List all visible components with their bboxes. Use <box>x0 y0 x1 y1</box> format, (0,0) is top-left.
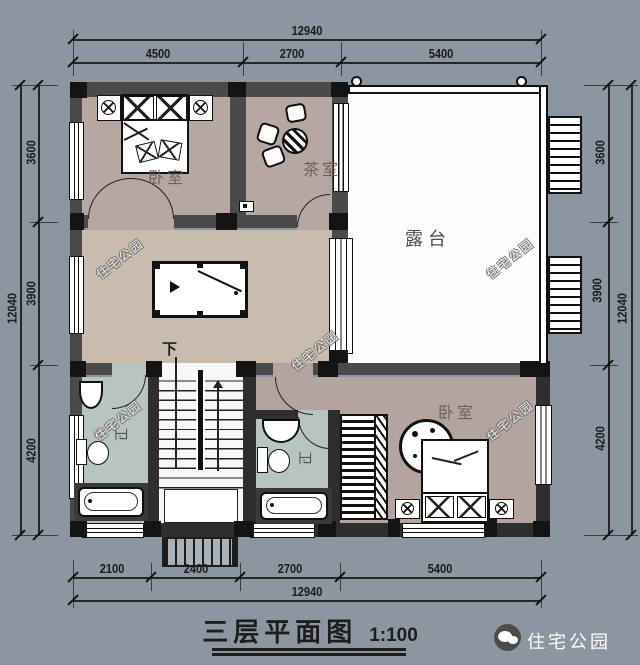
column <box>70 521 87 537</box>
column <box>388 519 400 537</box>
room-label-bedroom2: 卧室 <box>438 399 476 423</box>
window <box>69 256 84 334</box>
wechat-icon <box>494 624 521 651</box>
title-block: 三层平面图 1:100 <box>150 612 470 649</box>
column <box>228 82 246 97</box>
window <box>82 523 144 538</box>
lamp-icon <box>401 502 414 515</box>
dim-label: 2400 <box>171 561 222 576</box>
dim-line <box>20 85 22 535</box>
floor-plan-sheet: 下 <box>0 0 640 665</box>
toilet-bowl <box>87 441 109 465</box>
column <box>216 213 237 230</box>
room-label-bath2: 卫 <box>295 451 315 465</box>
column <box>146 361 162 377</box>
bed-pillow <box>457 496 486 518</box>
railing-post <box>351 76 362 87</box>
table-pocket <box>240 310 246 316</box>
rack-triangle <box>170 281 180 293</box>
title-underline <box>212 648 406 651</box>
room-label-tea: 茶室 <box>303 156 341 180</box>
window <box>402 523 485 538</box>
table-pocket <box>154 263 160 269</box>
wall-segment <box>86 363 112 375</box>
column <box>70 361 86 377</box>
tub-drain-dot <box>270 503 274 507</box>
billiard-ball-dot <box>234 291 238 295</box>
bed-line <box>121 119 189 121</box>
lamp-icon <box>193 100 208 115</box>
tub-inner-line <box>266 497 322 514</box>
column <box>236 361 256 377</box>
flower-box <box>548 116 582 194</box>
wardrobe-hanging-zone <box>376 414 388 520</box>
dim-label: 2700 <box>265 561 316 576</box>
wall-segment <box>336 363 522 375</box>
lamp-icon <box>495 502 508 515</box>
dim-line <box>73 600 541 602</box>
room-label-bedroom1: 卧室 <box>148 164 186 188</box>
dim-line <box>73 577 541 579</box>
table-pocket <box>197 311 203 317</box>
dim-line <box>73 39 541 41</box>
wall-segment <box>230 97 246 215</box>
dim-label: 4500 <box>133 46 184 61</box>
stair-center-rail <box>196 370 205 470</box>
toilet-tank <box>257 447 268 473</box>
wall-segment <box>256 363 273 375</box>
title-underline <box>212 653 406 656</box>
wall-segment <box>148 377 159 523</box>
window <box>535 405 552 485</box>
table-pocket <box>154 310 160 316</box>
dim-label: 4200 <box>593 413 608 464</box>
bathtub-symbol <box>78 487 144 517</box>
scale-label: 1:100 <box>369 625 418 649</box>
stair-up-arrow-line <box>217 387 219 471</box>
dim-label: 2700 <box>267 46 318 61</box>
rug-dot <box>412 431 418 437</box>
outlet-dot <box>243 204 247 208</box>
wardrobe-symbol <box>340 414 376 520</box>
dim-label: 5400 <box>416 46 467 61</box>
column <box>318 361 338 377</box>
flower-box <box>548 256 582 334</box>
wall-outlet-symbol <box>239 201 254 212</box>
brand-label: 住宅公园 <box>527 628 611 654</box>
stair-landing <box>164 489 238 523</box>
column <box>70 213 84 230</box>
tub-drain-dot <box>88 499 92 503</box>
column <box>70 82 87 98</box>
dim-label-left-total: 12040 <box>5 283 20 334</box>
window <box>250 523 315 538</box>
stair-down-label: 下 <box>162 338 177 359</box>
bed-line <box>421 492 489 494</box>
table-pocket <box>197 262 203 268</box>
bed-pillow <box>123 96 154 120</box>
bed-pillow <box>425 496 454 518</box>
rug-dot <box>430 428 435 433</box>
nightstand-symbol <box>189 95 213 121</box>
table-pocket <box>240 263 246 269</box>
column <box>533 521 550 537</box>
dim-label: 5400 <box>415 561 466 576</box>
deco-pillow <box>158 139 183 161</box>
stair-down-line <box>175 357 177 469</box>
dim-label: 3900 <box>590 265 605 316</box>
wall-segment <box>243 377 256 523</box>
dim-label: 3600 <box>24 127 39 178</box>
wall-segment <box>256 410 298 419</box>
dim-line <box>608 85 610 535</box>
toilet-bowl <box>268 449 290 473</box>
nightstand-symbol <box>395 499 420 519</box>
stair-up-arrowhead <box>213 380 223 388</box>
dim-label: 3600 <box>593 127 608 178</box>
column <box>331 82 348 97</box>
dim-label-right-total: 12040 <box>615 283 630 334</box>
room-label-terrace: 露台 <box>405 225 451 251</box>
dim-line <box>73 62 541 64</box>
rug-dot <box>413 454 417 458</box>
billiard-table-symbol <box>152 261 248 318</box>
wall-segment <box>174 215 218 228</box>
dim-label: 4200 <box>24 425 39 476</box>
window <box>69 122 84 200</box>
dim-label-top-total: 12940 <box>282 23 333 38</box>
page-title: 三层平面图 <box>202 612 357 649</box>
column <box>234 521 254 537</box>
bed-pillow <box>156 96 187 120</box>
railing-post <box>516 76 527 87</box>
nightstand-symbol <box>97 95 121 121</box>
terrace-railing-right <box>539 85 548 365</box>
column <box>329 213 348 230</box>
tub-inner-line <box>84 492 138 511</box>
dim-line <box>631 85 633 535</box>
column <box>144 521 161 537</box>
dim-label: 2100 <box>87 561 138 576</box>
dim-label: 3900 <box>24 268 39 319</box>
chat-bubble-small <box>508 636 518 644</box>
round-table-symbol <box>282 128 308 154</box>
wall-segment <box>237 215 297 228</box>
dim-label-bottom-total: 12940 <box>282 584 333 599</box>
toilet-tank <box>76 439 87 465</box>
lamp-icon <box>101 100 116 115</box>
nightstand-symbol <box>489 499 514 519</box>
bathtub-symbol <box>260 492 328 520</box>
stool-symbol <box>285 102 308 123</box>
